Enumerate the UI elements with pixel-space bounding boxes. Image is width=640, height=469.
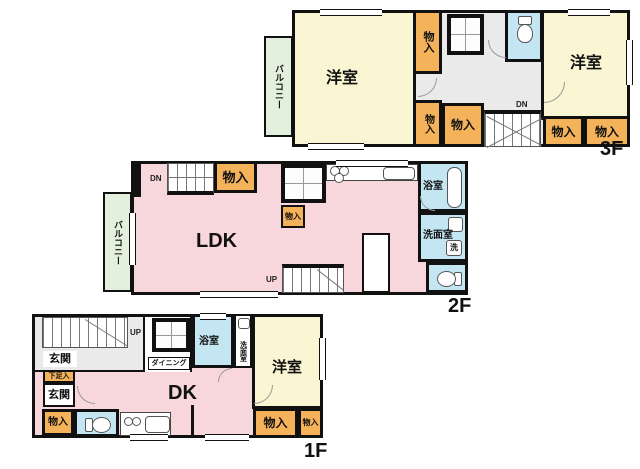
f1-dining-label: ダイニング [148,357,190,370]
f1-shoe-closet: 下足入 [43,370,75,383]
f3-balcony-label: バルコニー [266,38,291,135]
f2-up-label: UP [266,275,277,284]
f1-stairs-up [42,317,128,348]
f3-toilet-bowl-icon [517,24,533,43]
f1-toilet-room [74,409,119,437]
f1-closet-left: 物入 [42,409,74,436]
f2-window-kitchen [336,160,408,167]
f3-lightwell-icon [447,14,484,55]
f3-closet-top-label: 物入 [416,13,439,71]
f2-washer-icon: 洗 [446,240,462,256]
f1-floor-label: 1F [304,440,327,463]
f3-closet-bottom-left: 物入 [413,100,442,147]
floor-plan: バルコニー 洋室 物入 洋室 物入 物入 DN 物入 物入 3F バルコニー D… [0,0,640,469]
f1-kitchen-counter [120,412,171,436]
f3-window-bottom [308,143,364,150]
f2-washroom: 洗面室 洗 [418,212,468,262]
f1-bath-label: 浴室 [199,337,219,347]
f2-balcony: バルコニー [103,192,132,292]
f1-bath: 浴室 [192,314,234,368]
f1-window-bottom-mid [205,434,249,441]
f2-balcony-label: バルコニー [105,194,130,290]
f3-closet-top: 物入 [413,10,442,74]
f2-wall-segment [131,161,141,197]
f3-window-top-right [568,9,610,16]
f1-toilet-bowl-icon [92,417,111,433]
f3-stairs-dn [484,110,541,147]
f1-window-right [319,338,326,380]
f3-bedroom-right-label: 洋室 [570,56,602,72]
f3-balcony: バルコニー [264,36,293,137]
f3-window-top-left [320,9,382,16]
f3-dn-label: DN [516,100,528,109]
f1-dk-label: DK [168,383,197,403]
f3-bedroom-left-label: 洋室 [326,71,358,87]
f3-window-right [626,40,633,85]
f2-stove-burner3-icon [334,173,344,183]
f2-closet-top: 物入 [214,161,257,193]
f2-closet-small: 物入 [281,205,305,228]
f2-dn-label: DN [150,174,162,183]
f1-washroom-sink-icon [238,318,250,329]
f1-bedroom-label: 洋室 [272,360,302,375]
f3-closet-right-1: 物入 [543,116,584,147]
f1-window-top [200,313,226,320]
f2-stairs-dn [167,163,214,195]
f2-ldk-label: LDK [196,231,237,251]
f2-sink-icon [383,167,415,180]
f3-closet-bottom-left-label: 物入 [416,103,439,144]
f2-toilet-room [426,262,468,293]
f1-closet-right-large: 物入 [253,408,298,438]
f2-bath-label: 浴室 [423,182,443,192]
f1-entrance-upper: 玄関 [43,351,77,367]
f3-toilet-room [505,10,543,62]
f1-window-bottom-left [130,434,168,441]
f1-up-label: UP [130,328,141,337]
f1-stove-burner2-icon [132,417,141,426]
f1-washroom: 洗面室 [234,314,252,368]
f1-closet-right-small: 物入 [298,408,323,438]
f2-floor-label: 2F [448,295,471,318]
f3-closet-bottom-mid: 物入 [442,103,484,147]
f2-balcony-door [129,213,136,265]
f3-floor-label: 3F [600,138,623,161]
f1-wall-stub [191,405,194,438]
f1-lightwell-icon [152,318,190,352]
f1-entrance-lower: 玄関 [43,383,75,407]
f2-counter-block [362,233,390,293]
f2-lightwell-icon [281,164,326,203]
f2-window-bottom [200,291,278,298]
f2-bathtub-icon [447,167,462,208]
f2-toilet-bowl-icon [437,271,456,287]
f1-sink-icon [145,416,170,433]
f2-stairs-up [282,264,344,293]
